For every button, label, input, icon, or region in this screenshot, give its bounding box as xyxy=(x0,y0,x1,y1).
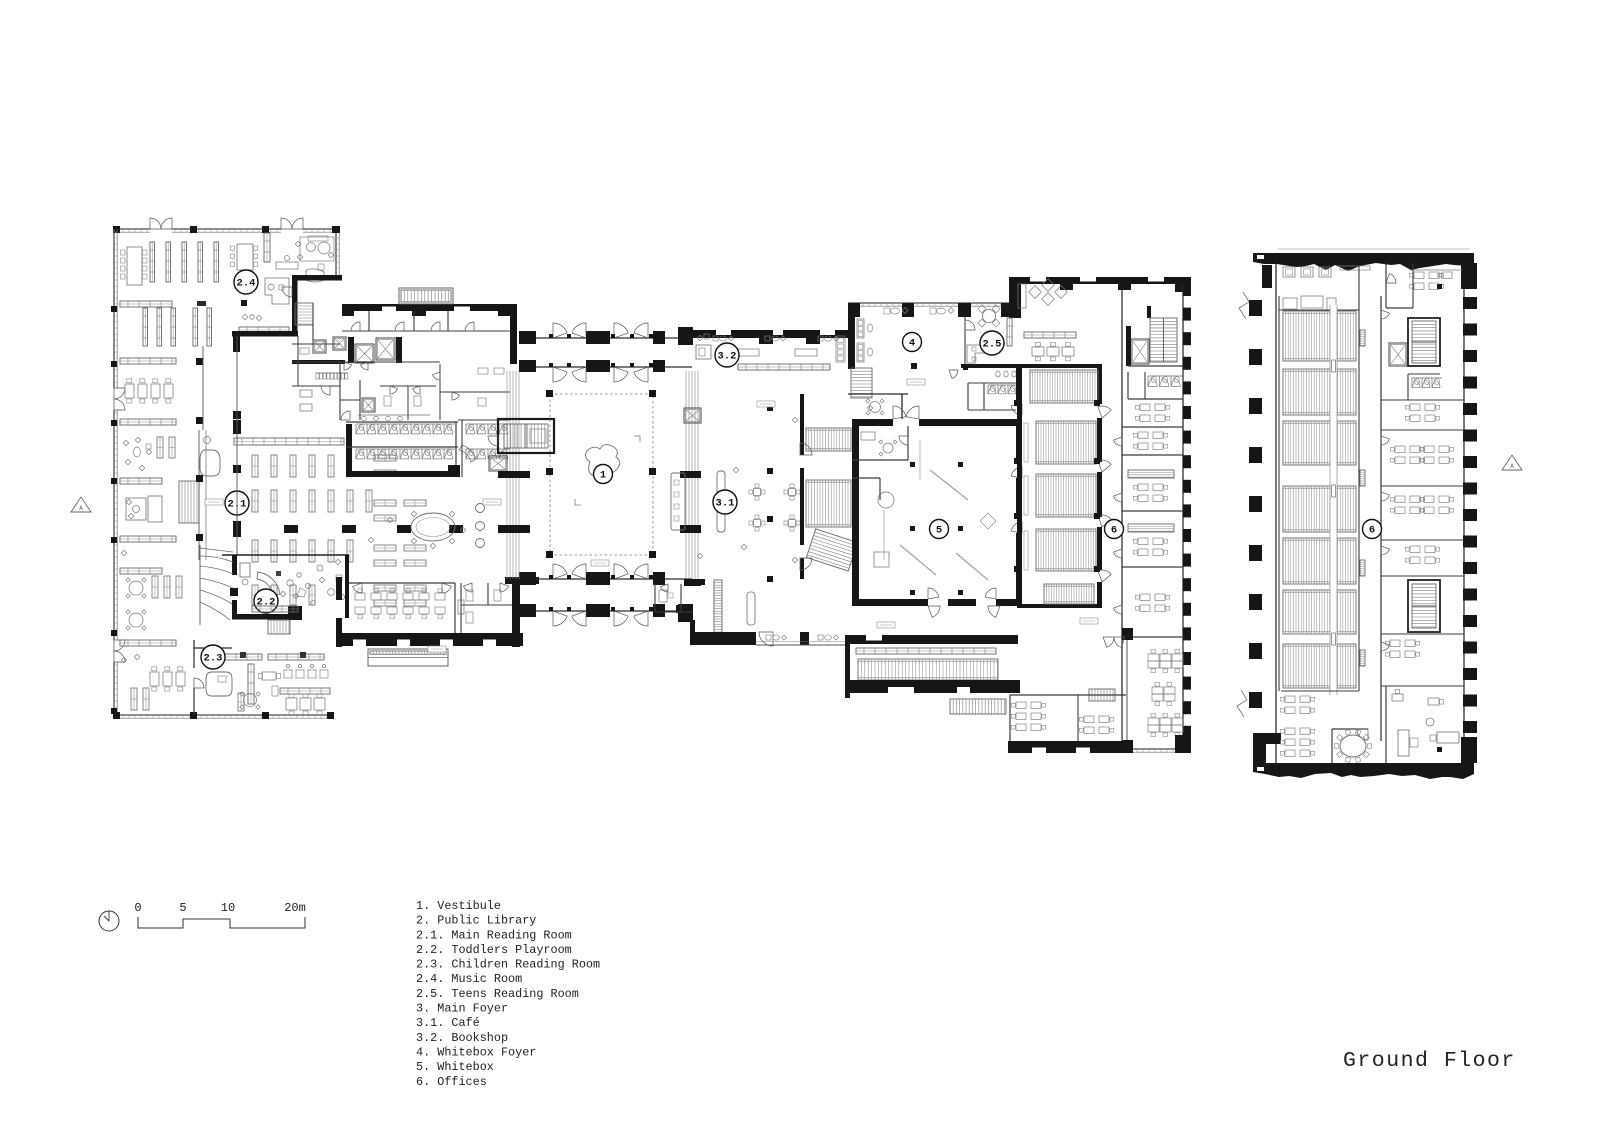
svg-text:2.2. Toddlers Playroom: 2.2. Toddlers Playroom xyxy=(416,943,572,957)
svg-text:5: 5 xyxy=(179,901,186,915)
svg-text:A: A xyxy=(79,505,83,512)
svg-text:3.1. Café: 3.1. Café xyxy=(416,1016,480,1030)
svg-text:Ground Floor: Ground Floor xyxy=(1343,1049,1516,1073)
svg-text:2.3: 2.3 xyxy=(204,653,223,665)
svg-text:2.5. Teens Reading Room: 2.5. Teens Reading Room xyxy=(416,987,579,1001)
svg-text:10: 10 xyxy=(221,901,235,915)
svg-text:3.2. Bookshop: 3.2. Bookshop xyxy=(416,1031,508,1045)
svg-text:A: A xyxy=(1510,463,1514,470)
svg-text:5. Whitebox: 5. Whitebox xyxy=(416,1060,494,1074)
svg-text:2.1. Main Reading Room: 2.1. Main Reading Room xyxy=(416,928,572,942)
svg-text:6: 6 xyxy=(1111,525,1117,537)
svg-text:4: 4 xyxy=(909,338,915,350)
svg-text:2. Public Library: 2. Public Library xyxy=(416,914,536,928)
svg-text:2.5: 2.5 xyxy=(983,339,1002,351)
svg-text:3. Main Foyer: 3. Main Foyer xyxy=(416,1002,508,1016)
svg-text:4. Whitebox Foyer: 4. Whitebox Foyer xyxy=(416,1046,536,1060)
svg-text:6: 6 xyxy=(1369,525,1375,537)
svg-text:20m: 20m xyxy=(284,901,306,915)
svg-text:3.2: 3.2 xyxy=(718,351,737,363)
svg-text:5: 5 xyxy=(936,525,942,537)
svg-text:0: 0 xyxy=(134,901,141,915)
svg-text:2.3. Children Reading Room: 2.3. Children Reading Room xyxy=(416,958,600,972)
svg-text:2.4: 2.4 xyxy=(237,278,256,290)
svg-text:2.2: 2.2 xyxy=(257,597,276,609)
svg-text:6. Offices: 6. Offices xyxy=(416,1075,487,1089)
svg-text:1. Vestibule: 1. Vestibule xyxy=(416,899,501,913)
svg-text:1: 1 xyxy=(600,470,606,482)
svg-text:2.4. Music Room: 2.4. Music Room xyxy=(416,972,522,986)
svg-text:3.1: 3.1 xyxy=(716,498,735,510)
